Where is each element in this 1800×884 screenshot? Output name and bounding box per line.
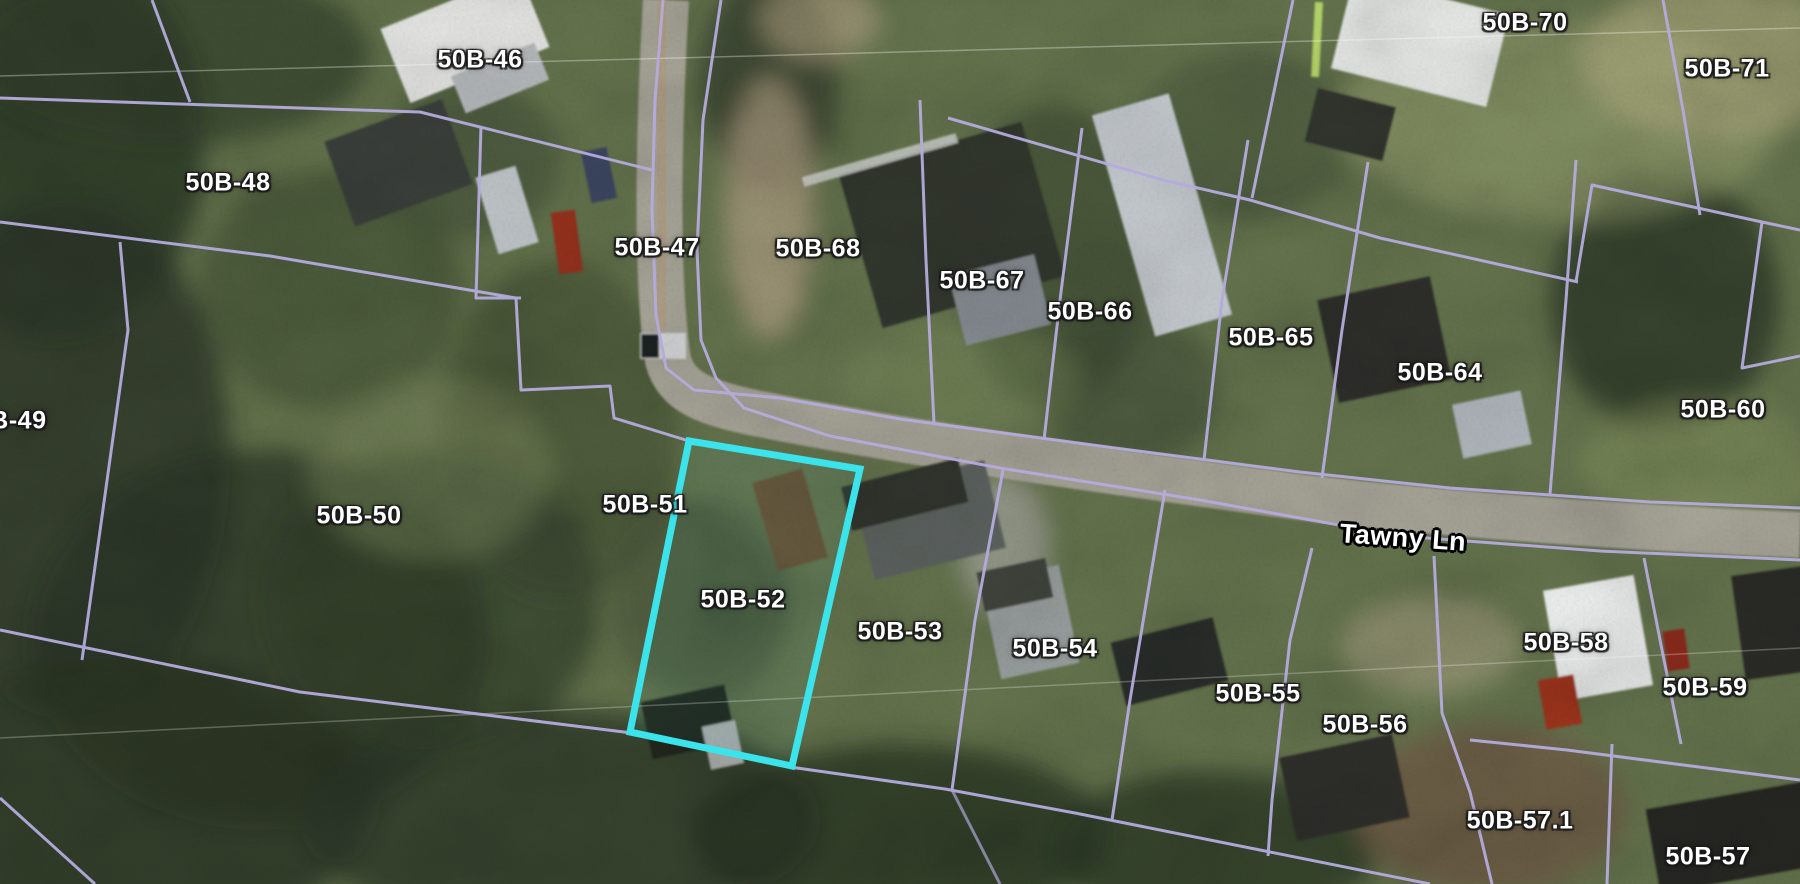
- parcel-label-50B-48[interactable]: 50B-48: [186, 169, 271, 198]
- parcel-label-50B-57.1[interactable]: 50B-57.1: [1467, 807, 1574, 836]
- parcel-label-50B-67[interactable]: 50B-67: [940, 267, 1025, 296]
- map-canvas[interactable]: Tawny Ln 50B-4650B-4750B-4850B-4950B-505…: [0, 0, 1800, 884]
- parcel-label-50B-47[interactable]: 50B-47: [615, 234, 700, 263]
- parcel-label-50B-51[interactable]: 50B-51: [603, 491, 688, 520]
- parcel-label-50B-66[interactable]: 50B-66: [1048, 298, 1133, 327]
- parcel-label-50B-65[interactable]: 50B-65: [1229, 324, 1314, 353]
- parcel-label-50B-71[interactable]: 50B-71: [1685, 55, 1770, 84]
- parcel-label-50B-57[interactable]: 50B-57: [1666, 843, 1751, 872]
- grain-overlay: [0, 0, 1800, 884]
- parcel-label-50B-59[interactable]: 50B-59: [1663, 674, 1748, 703]
- parcel-label-50B-60[interactable]: 50B-60: [1681, 396, 1766, 425]
- parcel-label-50B-55[interactable]: 50B-55: [1216, 680, 1301, 709]
- parcel-label-50B-46[interactable]: 50B-46: [438, 46, 523, 75]
- parcel-label-50B-56[interactable]: 50B-56: [1323, 711, 1408, 740]
- parcel-label-50B-64[interactable]: 50B-64: [1398, 359, 1483, 388]
- aerial-imagery: [0, 0, 1800, 884]
- parcel-label-50B-52[interactable]: 50B-52: [701, 586, 786, 615]
- parcel-label-50B-53[interactable]: 50B-53: [858, 618, 943, 647]
- parcel-label-50B-70[interactable]: 50B-70: [1483, 9, 1568, 38]
- parcel-label-50B-50[interactable]: 50B-50: [317, 502, 402, 531]
- parcel-label-50B-54[interactable]: 50B-54: [1013, 635, 1098, 664]
- parcel-label-50B-49[interactable]: 50B-49: [0, 407, 47, 436]
- parcel-label-50B-58[interactable]: 50B-58: [1524, 629, 1609, 658]
- parcel-label-50B-68[interactable]: 50B-68: [776, 235, 861, 264]
